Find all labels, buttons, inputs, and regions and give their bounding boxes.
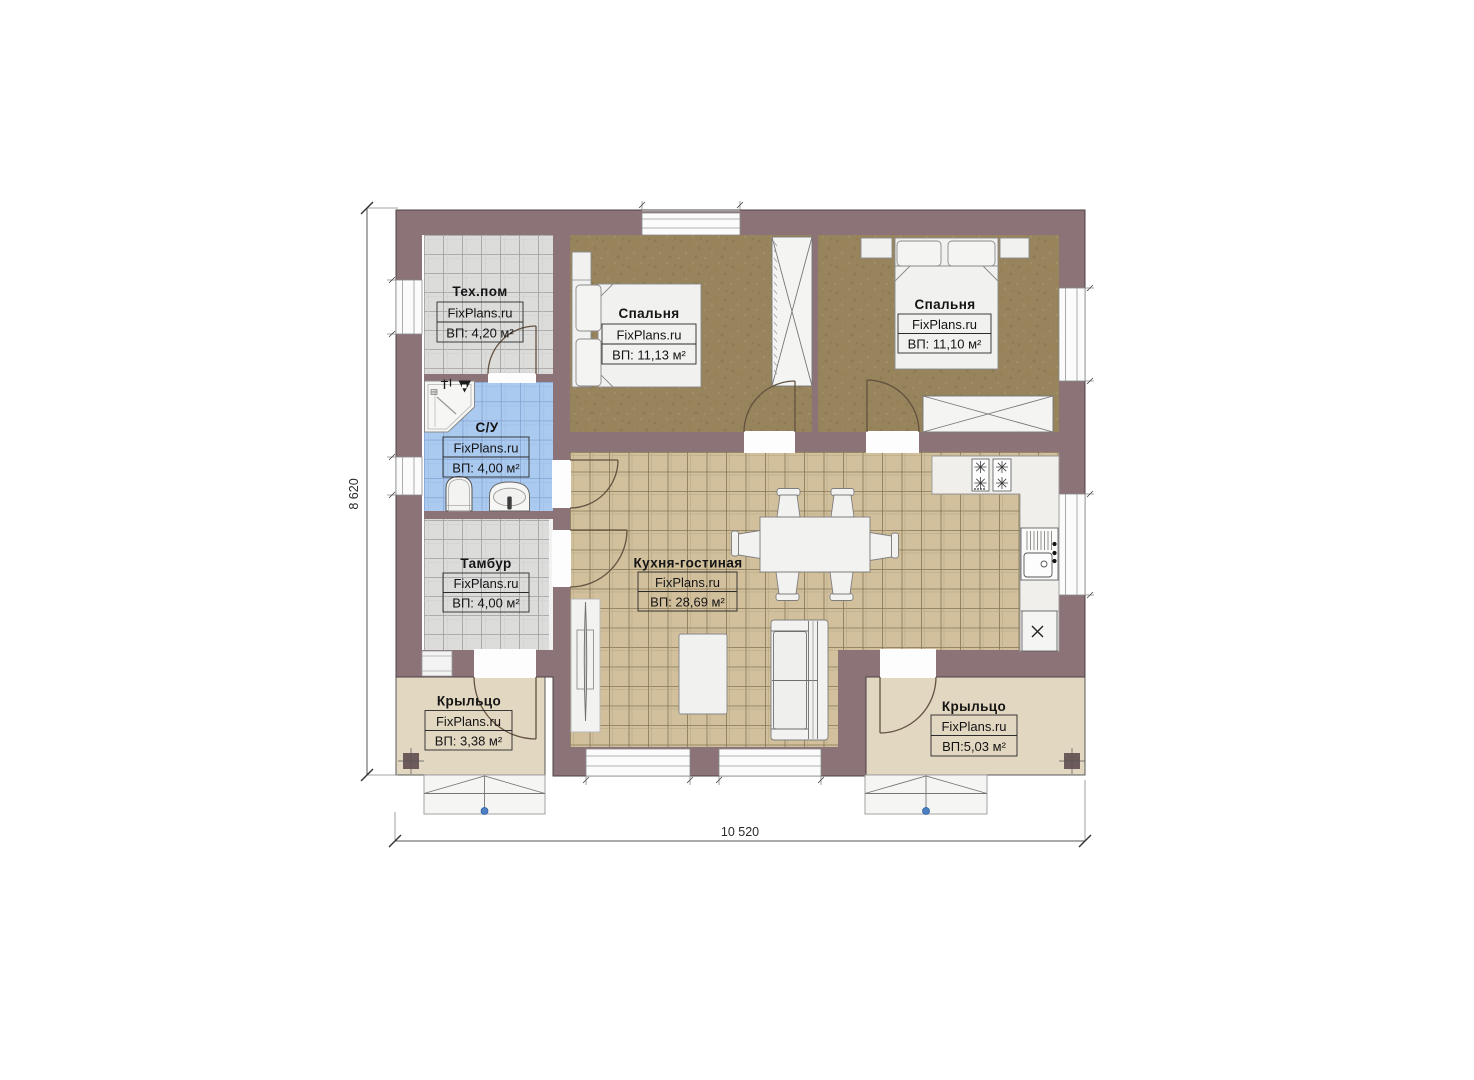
svg-text:FixPlans.ru: FixPlans.ru <box>453 576 518 591</box>
svg-text:Спальня: Спальня <box>618 306 679 321</box>
svg-text:ВП: 4,00 м²: ВП: 4,00 м² <box>452 596 520 611</box>
svg-text:Кухня-гостиная: Кухня-гостиная <box>633 556 742 571</box>
svg-text:Тех.пом: Тех.пом <box>452 284 507 299</box>
svg-text:8 620: 8 620 <box>347 478 361 509</box>
svg-text:С/У: С/У <box>475 420 498 435</box>
svg-text:ВП: 11,10 м²: ВП: 11,10 м² <box>908 337 982 352</box>
svg-text:Крыльцо: Крыльцо <box>437 694 501 709</box>
svg-text:ВП: 28,69 м²: ВП: 28,69 м² <box>650 595 725 610</box>
svg-text:FixPlans.ru: FixPlans.ru <box>912 317 977 332</box>
svg-text:Крыльцо: Крыльцо <box>942 699 1006 714</box>
svg-text:FixPlans.ru: FixPlans.ru <box>616 328 681 343</box>
svg-text:ВП: 4,00 м²: ВП: 4,00 м² <box>452 461 520 476</box>
svg-text:FixPlans.ru: FixPlans.ru <box>941 719 1006 734</box>
svg-text:Тамбур: Тамбур <box>460 556 511 571</box>
svg-text:10 520: 10 520 <box>721 825 759 839</box>
svg-text:ВП: 4,20 м²: ВП: 4,20 м² <box>446 326 514 341</box>
svg-text:FixPlans.ru: FixPlans.ru <box>436 714 501 729</box>
svg-text:ВП: 3,38 м²: ВП: 3,38 м² <box>435 734 503 749</box>
svg-text:FixPlans.ru: FixPlans.ru <box>447 306 512 321</box>
svg-text:FixPlans.ru: FixPlans.ru <box>453 441 518 456</box>
svg-text:ВП:5,03 м²: ВП:5,03 м² <box>942 739 1006 754</box>
svg-text:Спальня: Спальня <box>914 297 975 312</box>
svg-text:ВП: 11,13 м²: ВП: 11,13 м² <box>612 348 686 363</box>
svg-text:FixPlans.ru: FixPlans.ru <box>655 575 720 590</box>
